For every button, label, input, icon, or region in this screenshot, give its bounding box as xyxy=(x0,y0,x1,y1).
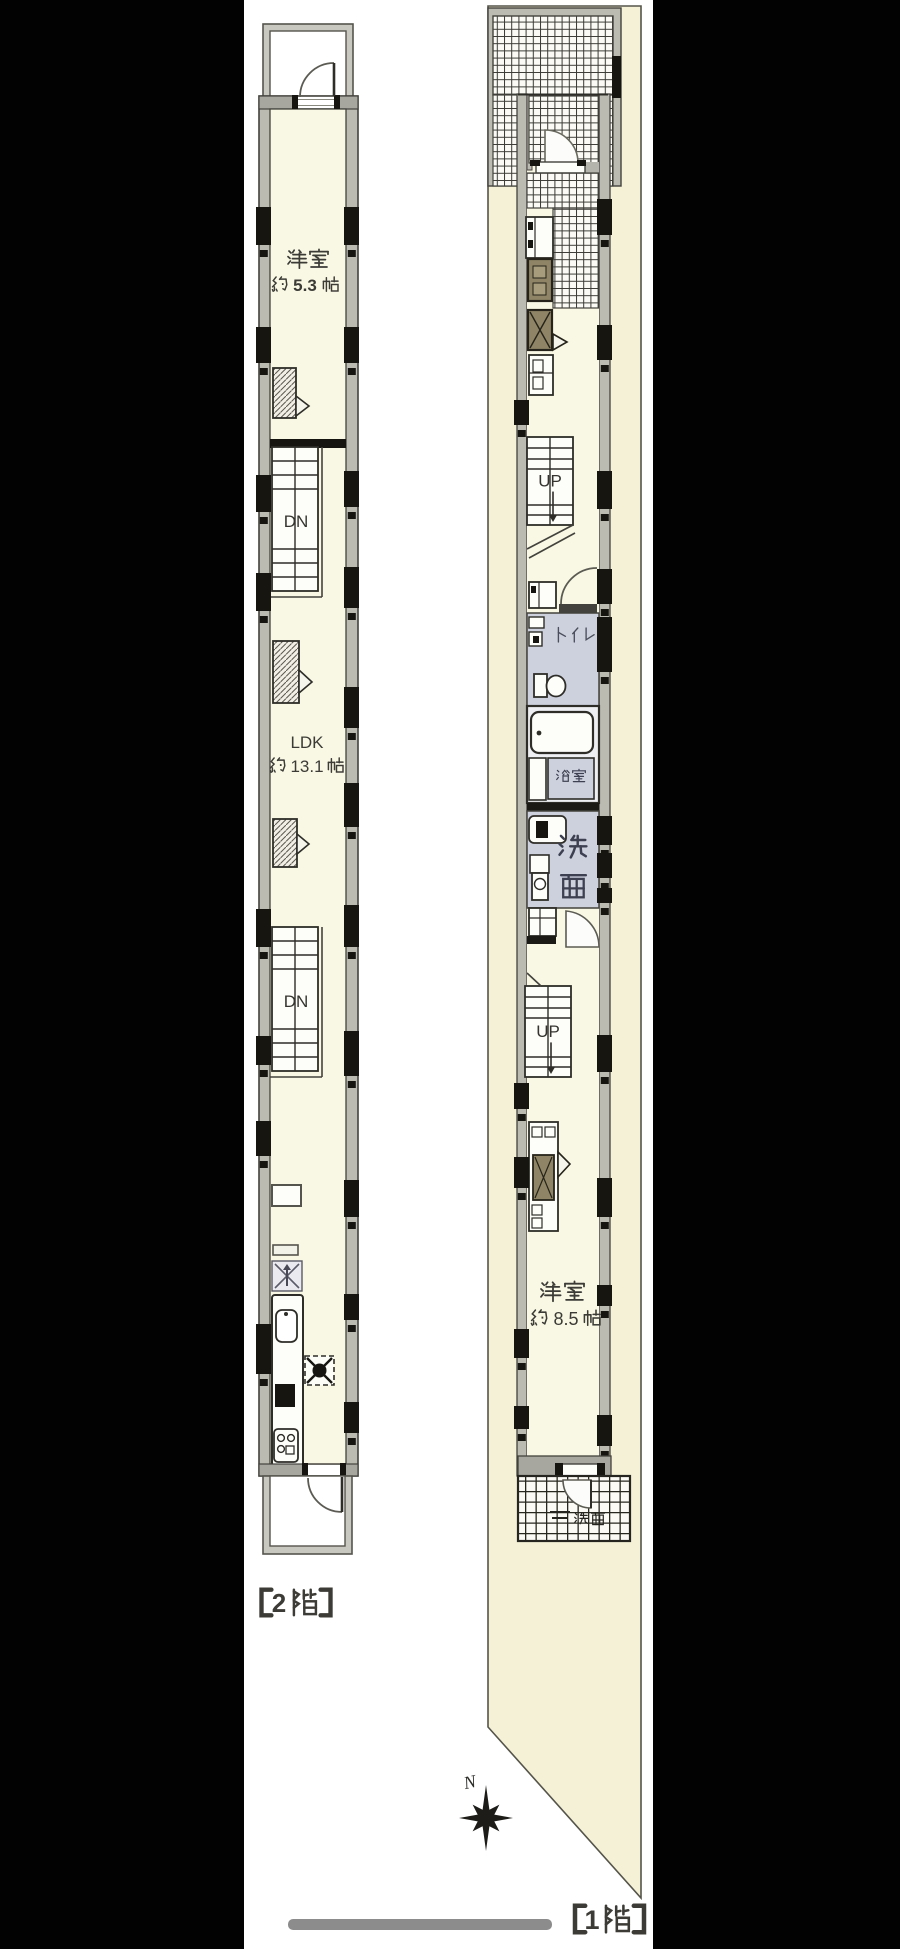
svg-text:8.5: 8.5 xyxy=(553,1309,578,1329)
svg-text:DN: DN xyxy=(284,512,309,531)
svg-text:LDK: LDK xyxy=(290,733,324,752)
svg-text:5.3: 5.3 xyxy=(293,276,317,295)
svg-text:DN: DN xyxy=(284,992,309,1011)
svg-text:1: 1 xyxy=(584,1905,599,1935)
svg-text:13.1: 13.1 xyxy=(290,757,323,776)
svg-text:2: 2 xyxy=(272,1588,286,1618)
svg-text:UP: UP xyxy=(538,471,562,490)
svg-text:UP: UP xyxy=(536,1022,560,1041)
